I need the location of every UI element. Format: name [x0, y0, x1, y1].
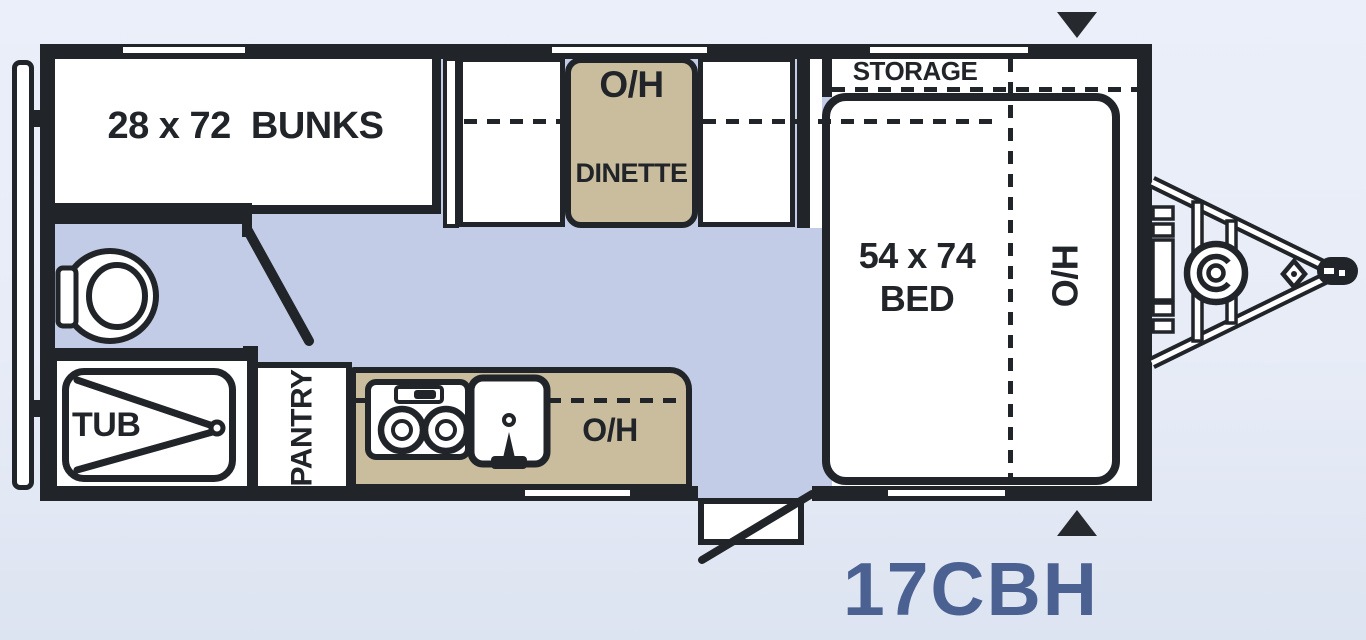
- bed-dashed-line: [703, 119, 995, 124]
- window: [870, 47, 1028, 53]
- toilet-icon: [50, 247, 165, 347]
- storage-dashed-line: [832, 87, 1137, 92]
- bed-size-label: 54 x 74: [842, 238, 992, 274]
- window: [123, 47, 245, 53]
- bumper-bracket: [34, 110, 46, 127]
- tongue-hitch-icon: [1145, 160, 1366, 385]
- tub-label: TUB: [72, 408, 152, 442]
- bed-dashed-divider: [1008, 59, 1013, 483]
- bumper-bracket: [34, 400, 46, 417]
- dinette-label: DINETTE: [565, 160, 698, 187]
- entry-door-swing-icon: [690, 480, 830, 570]
- floorplan-17cbh: 28 x 72 BUNKS TUB PANTRY: [0, 0, 1366, 640]
- dinette-seat: [458, 57, 565, 227]
- bed-label: BED: [842, 281, 992, 317]
- bed-overhead-label: O/H: [1028, 238, 1102, 314]
- window: [525, 490, 630, 496]
- pantry-label: PANTRY: [252, 362, 352, 493]
- kitchen-overhead-dashed: [548, 398, 680, 403]
- storage-label: STORAGE: [840, 58, 990, 84]
- bed-partition: [822, 59, 832, 97]
- bathroom-door-swing-icon: [235, 222, 325, 352]
- stove-icon: [362, 379, 474, 463]
- dinette-bench-back: [443, 57, 459, 228]
- dinette-overhead-label: O/H: [565, 66, 698, 103]
- window: [552, 47, 707, 53]
- dinette-bench-back: [797, 57, 810, 228]
- rear-bumper-icon: [12, 60, 34, 490]
- dinette-seat: [698, 57, 795, 227]
- arrow-down-icon: [1057, 12, 1097, 38]
- dinette-seat-dashed: [464, 119, 565, 124]
- sink-icon: [466, 372, 552, 474]
- bathroom-wall: [48, 203, 252, 224]
- propane-tank-icon: [1187, 244, 1245, 302]
- bunks-label: 28 x 72 BUNKS: [58, 107, 433, 145]
- model-label: 17CBH: [843, 552, 1153, 627]
- window: [888, 490, 1005, 496]
- arrow-up-icon: [1057, 510, 1097, 536]
- bench-partition-gap: [810, 57, 822, 228]
- hitch-coupler: [1317, 257, 1358, 285]
- kitchen-overhead-label: O/H: [558, 414, 662, 446]
